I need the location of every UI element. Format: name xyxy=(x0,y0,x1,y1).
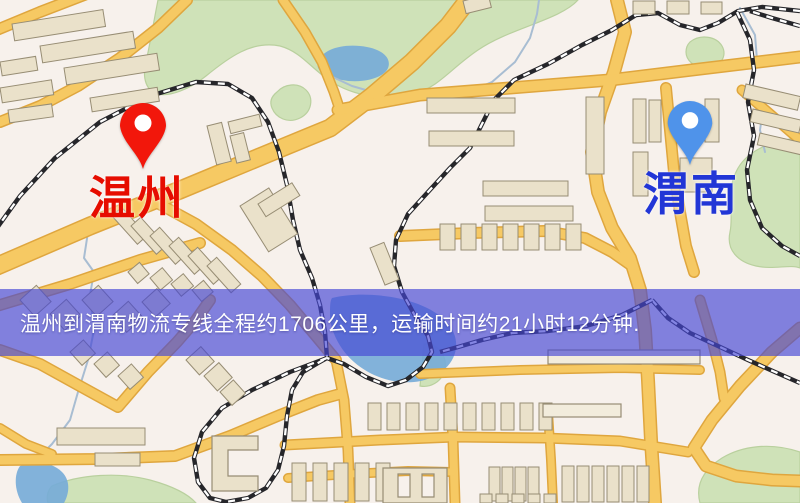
map-container: 温州 渭南 温州到渭南物流专线全程约1706公里，运输时间约21小时12分钟. xyxy=(0,0,800,503)
banner-text: 温州到渭南物流专线全程约1706公里，运输时间约21小时12分钟. xyxy=(20,308,640,338)
map-canvas xyxy=(0,0,800,503)
info-banner: 温州到渭南物流专线全程约1706公里，运输时间约21小时12分钟. xyxy=(0,289,800,356)
